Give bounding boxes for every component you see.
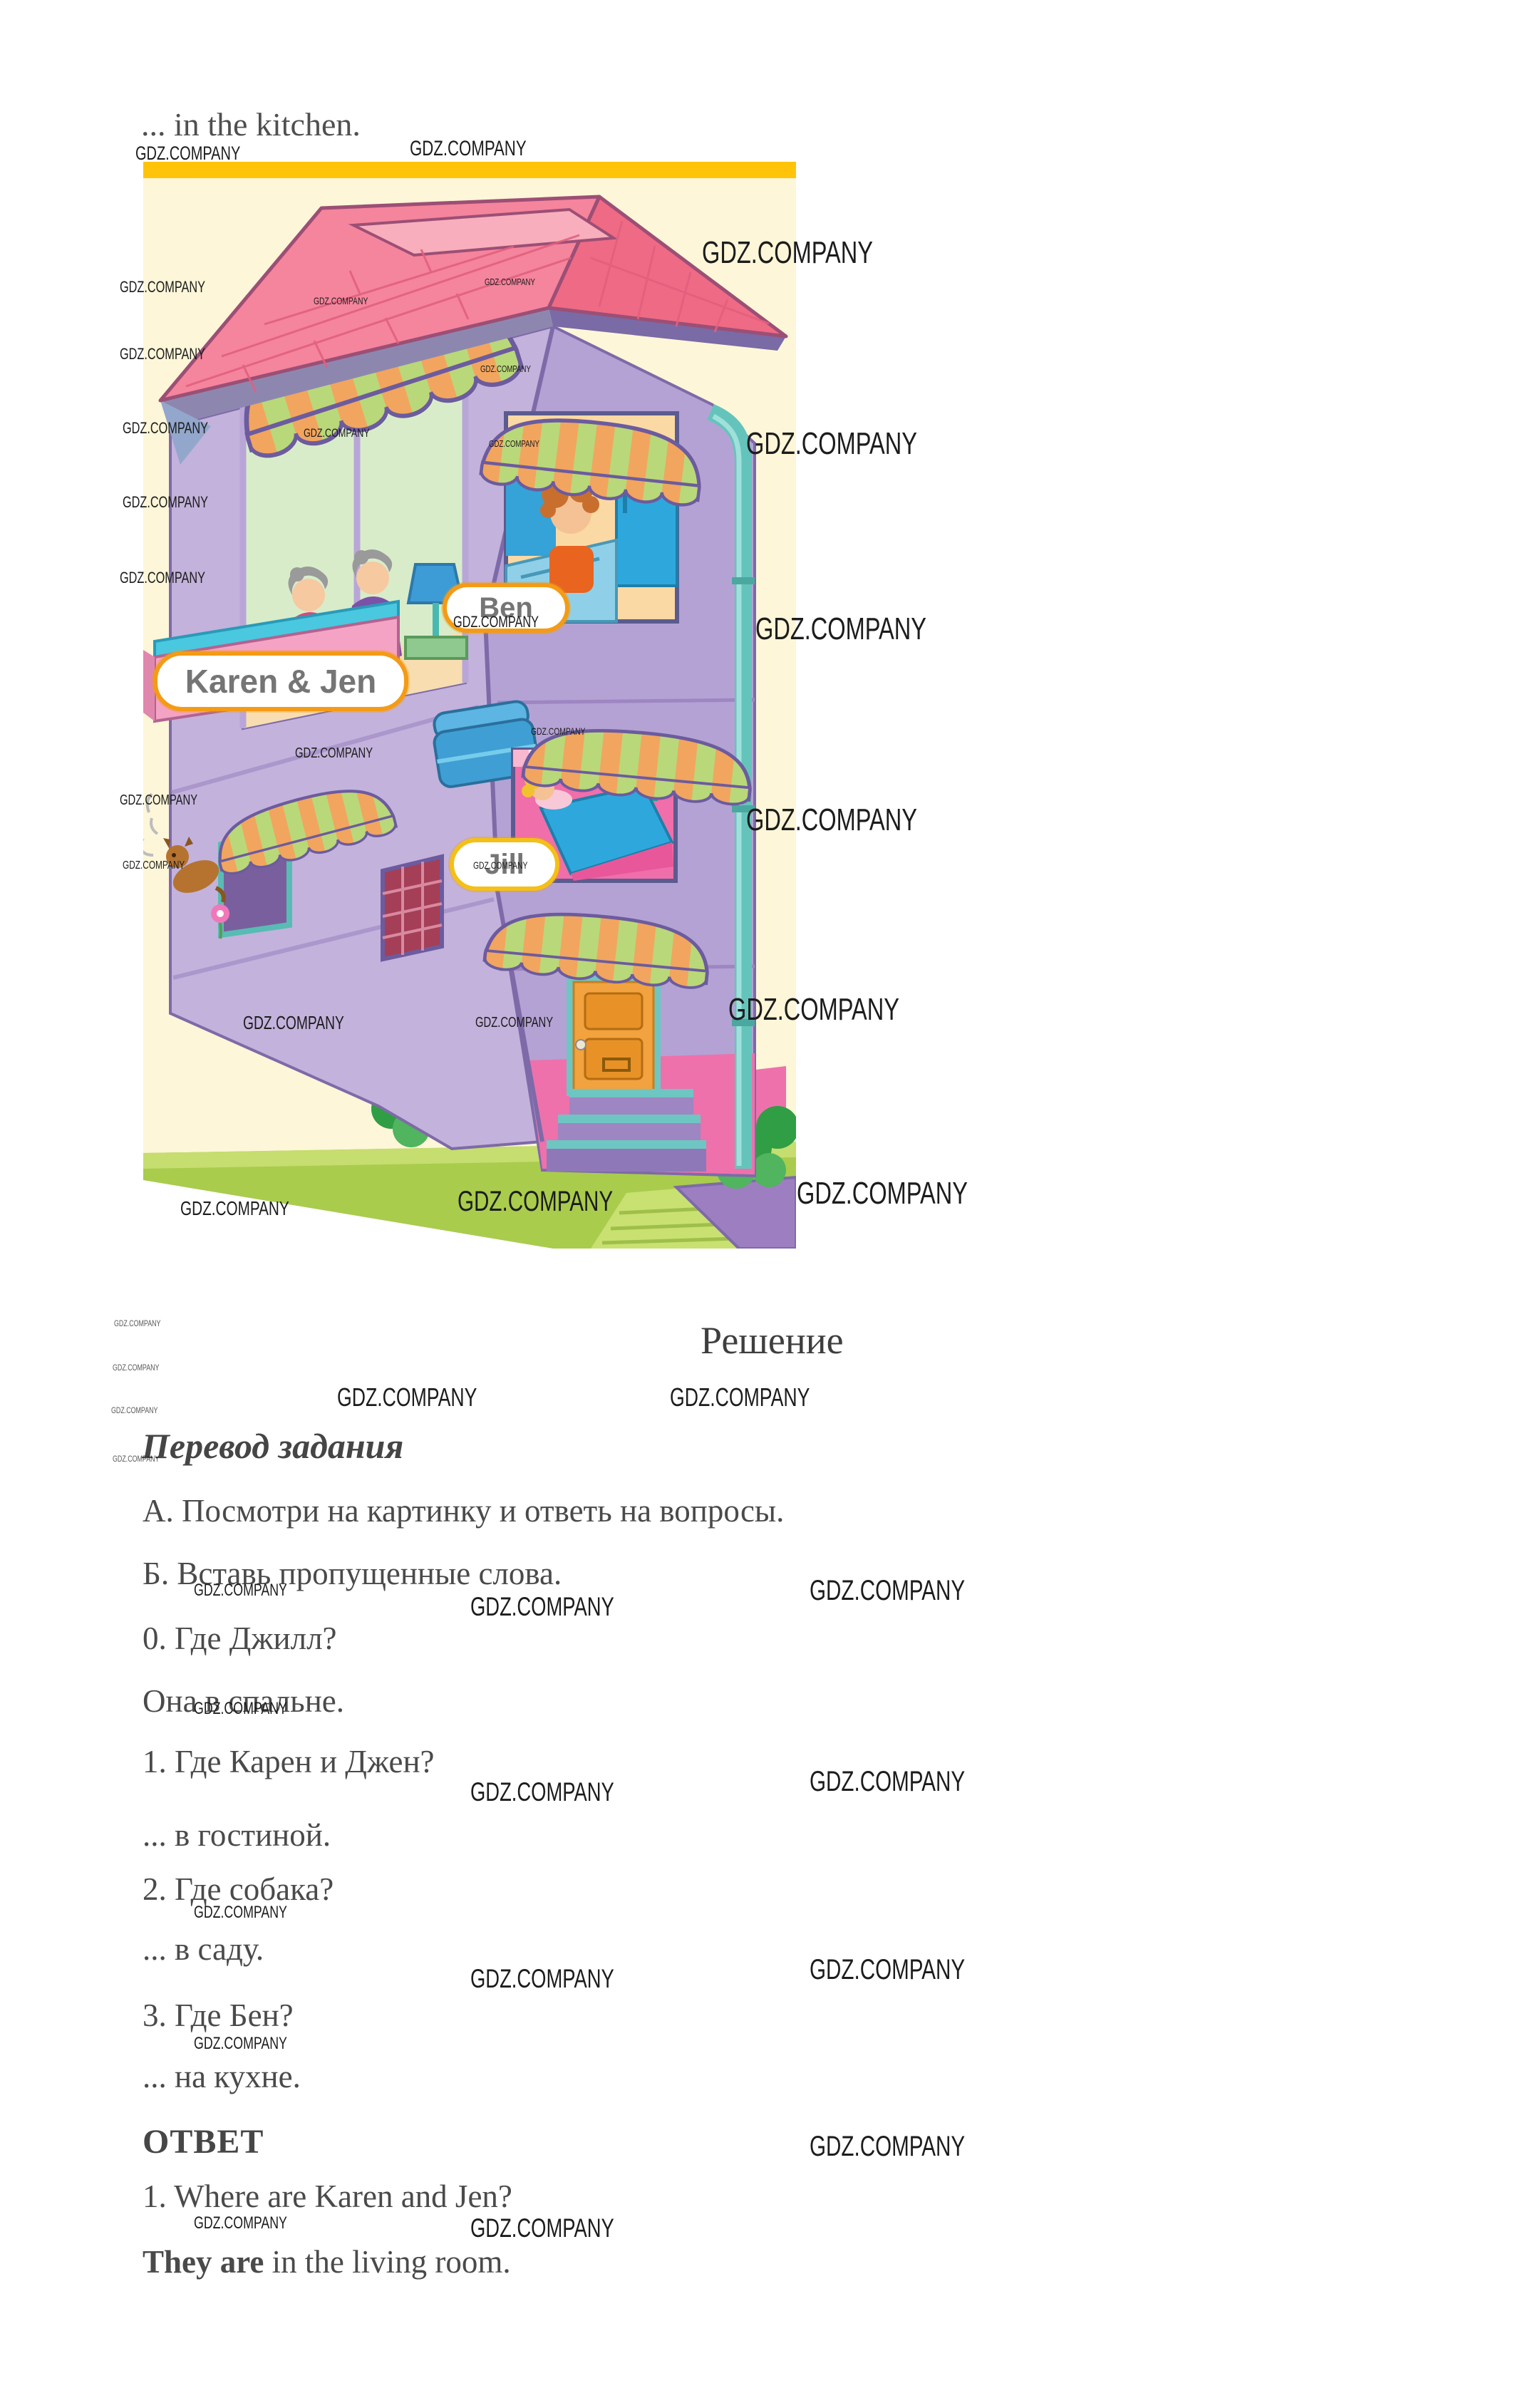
watermark-text: GDZ.COMPANY bbox=[410, 137, 527, 161]
watermark-text: GDZ.COMPANY bbox=[470, 1964, 614, 1994]
watermark-text: GDZ.COMPANY bbox=[113, 1363, 159, 1373]
watermark-text: GDZ.COMPANY bbox=[114, 1318, 160, 1328]
answer-2: ... в саду. bbox=[143, 1931, 264, 1968]
label-ben: Ben bbox=[443, 583, 569, 633]
house-illustration bbox=[143, 178, 796, 1249]
label-karen-jen-text: Karen & Jen bbox=[185, 662, 376, 701]
task-line-b: Б. Вставь пропущенные слова. bbox=[143, 1555, 562, 1592]
steps bbox=[547, 1089, 706, 1172]
watermark-text: GDZ.COMPANY bbox=[470, 2213, 614, 2243]
watermark-text: GDZ.COMPANY bbox=[797, 1176, 968, 1211]
question-3: 3. Где Бен? bbox=[143, 1997, 294, 2034]
watermark-text: GDZ.COMPANY bbox=[470, 1592, 614, 1622]
translation-heading: Перевод задания bbox=[142, 1425, 403, 1467]
answer-0: Она в спальне. bbox=[143, 1683, 344, 1720]
question-1: 1. Где Карен и Джен? bbox=[143, 1743, 435, 1780]
label-ben-text: Ben bbox=[479, 592, 533, 624]
watermark-text: GDZ.COMPANY bbox=[810, 2131, 965, 2163]
answer-rest-part: in the living room. bbox=[264, 2244, 510, 2280]
solution-heading: Решение bbox=[701, 1318, 844, 1363]
answer-question-en: 1. Where are Karen and Jen? bbox=[143, 2178, 512, 2215]
question-2: 2. Где собака? bbox=[143, 1871, 334, 1908]
answer-bold-part: They are bbox=[143, 2244, 264, 2280]
watermark-text: GDZ.COMPANY bbox=[337, 1383, 477, 1412]
watermark-text: GDZ.COMPANY bbox=[810, 1766, 965, 1798]
answer-1: ... в гостиной. bbox=[143, 1816, 331, 1854]
yellow-divider-bar bbox=[143, 162, 796, 178]
watermark-text: GDZ.COMPANY bbox=[810, 1575, 965, 1607]
watermark-text: GDZ.COMPANY bbox=[194, 2034, 287, 2054]
page: ... in the kitchen. bbox=[0, 0, 1540, 2398]
answer-heading: ОТВЕТ bbox=[143, 2122, 264, 2161]
watermark-text: GDZ.COMPANY bbox=[670, 1383, 810, 1412]
answer-line-en: They are in the living room. bbox=[143, 2243, 511, 2280]
label-jill-text: Jill bbox=[485, 849, 524, 881]
label-jill: Jill bbox=[450, 838, 559, 891]
label-karen-jen: Karen & Jen bbox=[153, 651, 408, 711]
answer-3: ... на кухне. bbox=[143, 2058, 301, 2095]
task-line-a: А. Посмотри на картинку и ответь на вопр… bbox=[143, 1492, 784, 1529]
watermark-text: GDZ.COMPANY bbox=[194, 2213, 287, 2233]
grid-window bbox=[383, 857, 442, 959]
intro-line: ... in the kitchen. bbox=[141, 105, 361, 143]
watermark-text: GDZ.COMPANY bbox=[810, 1954, 965, 1986]
watermark-text: GDZ.COMPANY bbox=[111, 1405, 157, 1415]
watermark-text: GDZ.COMPANY bbox=[470, 1777, 614, 1807]
question-0: 0. Где Джилл? bbox=[143, 1620, 337, 1657]
